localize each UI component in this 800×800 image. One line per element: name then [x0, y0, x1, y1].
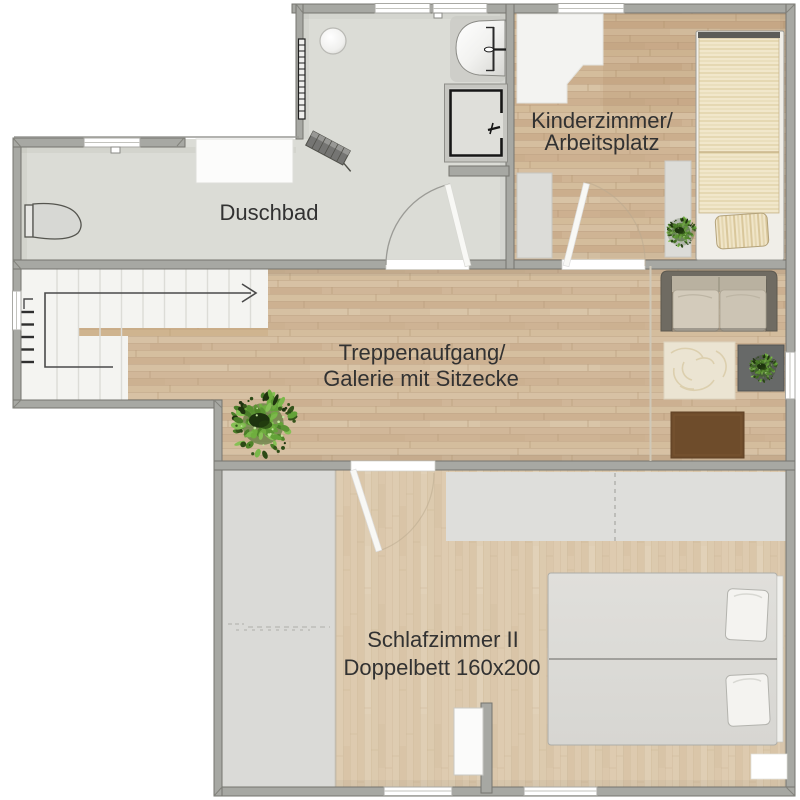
svg-text:Galerie mit Sitzecke: Galerie mit Sitzecke [323, 366, 519, 391]
svg-text:Doppelbett 160x200: Doppelbett 160x200 [344, 655, 541, 680]
svg-text:Schlafzimmer II: Schlafzimmer II [367, 627, 519, 652]
svg-text:Treppenaufgang/: Treppenaufgang/ [339, 340, 507, 365]
svg-text:Duschbad: Duschbad [219, 200, 318, 225]
svg-text:Arbeitsplatz: Arbeitsplatz [545, 130, 660, 155]
